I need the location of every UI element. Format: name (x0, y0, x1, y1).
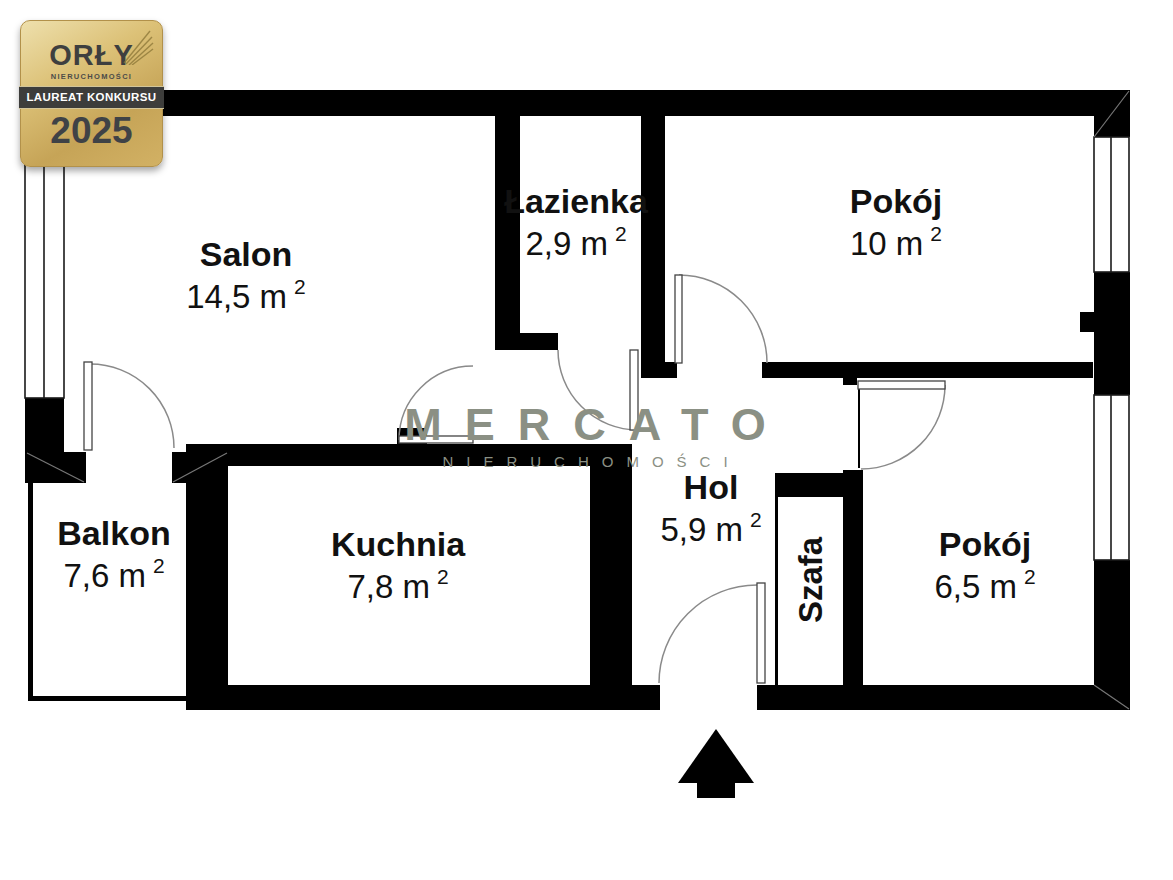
badge-band: LAUREAT KONKURSU (19, 86, 164, 109)
room-label-salon: Salon 14,5 m2 (186, 233, 306, 317)
room-area-pokoj-65: 6,5 m2 (934, 566, 1035, 607)
door-entrance-arc (659, 585, 757, 683)
door-entrance-leaf (757, 583, 765, 683)
door-pokoj65 (858, 381, 945, 469)
room-name-lazienka: Łazienka (504, 180, 648, 223)
wall-szafa-thin-left (775, 473, 778, 685)
door-pokoj65-arc (861, 385, 945, 469)
floorplan-page: MERCATO NIERUCHOMOŚCI Salon 14,5 m2 Łazi… (0, 0, 1173, 880)
room-name-kuchnia: Kuchnia (331, 523, 465, 566)
room-area-hol: 5,9 m2 (660, 509, 761, 550)
wall-lazienka-bottom (495, 333, 558, 350)
door-pokoj10 (675, 275, 767, 363)
entrance-arrow (678, 729, 754, 798)
door-lazienka-arc (558, 350, 638, 430)
door-lazienka (558, 350, 638, 430)
door-kuchnia-leaf (399, 436, 473, 443)
room-label-pokoj-10: Pokój 10 m2 (850, 180, 943, 264)
room-label-balkon: Balkon 7,6 m2 (57, 512, 170, 596)
door-balkon (84, 362, 174, 450)
room-area-pokoj-10: 10 m2 (850, 223, 943, 264)
wall-right-mid (1094, 272, 1130, 395)
floorplan-drawing (0, 0, 1173, 880)
room-area-balkon: 7,6 m2 (57, 555, 170, 596)
door-pokoj65-leaf (858, 381, 945, 389)
wall-szafa-right (843, 470, 863, 685)
entrance-arrow-stem (697, 783, 735, 798)
wall-balkon-thin-bottom (28, 696, 188, 701)
room-area-kuchnia: 7,8 m2 (331, 566, 465, 607)
room-name-pokoj-65: Pokój (934, 523, 1035, 566)
wall-top (25, 90, 1130, 116)
entrance-arrow-head (678, 729, 754, 783)
room-label-hol: Hol 5,9 m2 (660, 466, 761, 550)
badge-subtitle: NIERUCHOMOŚCI (21, 72, 162, 81)
feather-icon (120, 29, 154, 65)
wall-kuchnia-hol (590, 444, 632, 685)
room-label-szafa: Szafa (792, 537, 830, 623)
room-label-pokoj-65: Pokój 6,5 m2 (934, 523, 1035, 607)
door-entrance (659, 583, 765, 683)
wall-kuchnia-top (186, 444, 613, 466)
door-balkon-leaf (84, 362, 92, 450)
room-label-lazienka: Łazienka 2,9 m2 (504, 180, 648, 264)
room-name-pokoj-10: Pokój (850, 180, 943, 223)
room-area-lazienka: 2,9 m2 (504, 223, 648, 264)
wall-szafa-stub (843, 378, 857, 385)
wall-divider-right (762, 362, 1093, 378)
wall-left-sill (25, 398, 64, 452)
wall-balkon-thin-left (28, 483, 33, 701)
room-area-salon: 14,5 m2 (186, 276, 306, 317)
door-balkon-arc (90, 364, 174, 448)
door-pokoj10-arc (679, 275, 767, 363)
doorjamb-pokoj65 (858, 385, 860, 468)
room-name-balkon: Balkon (57, 512, 170, 555)
badge-year: 2025 (21, 112, 162, 149)
door-pokoj10-leaf (675, 275, 682, 363)
wall-balkon-right (186, 452, 228, 700)
wall-divider-stub (641, 362, 677, 378)
room-label-kuchnia: Kuchnia 7,8 m2 (331, 523, 465, 607)
wall-nub-right (1080, 312, 1094, 332)
wall-bottom-right (757, 685, 1130, 710)
award-badge: ORŁY NIERUCHOMOŚCI LAUREAT KONKURSU 2025 (20, 20, 163, 167)
room-name-hol: Hol (660, 466, 761, 509)
door-lazienka-leaf (630, 350, 638, 430)
room-name-salon: Salon (186, 233, 306, 276)
wall-bottom-left (186, 685, 660, 710)
